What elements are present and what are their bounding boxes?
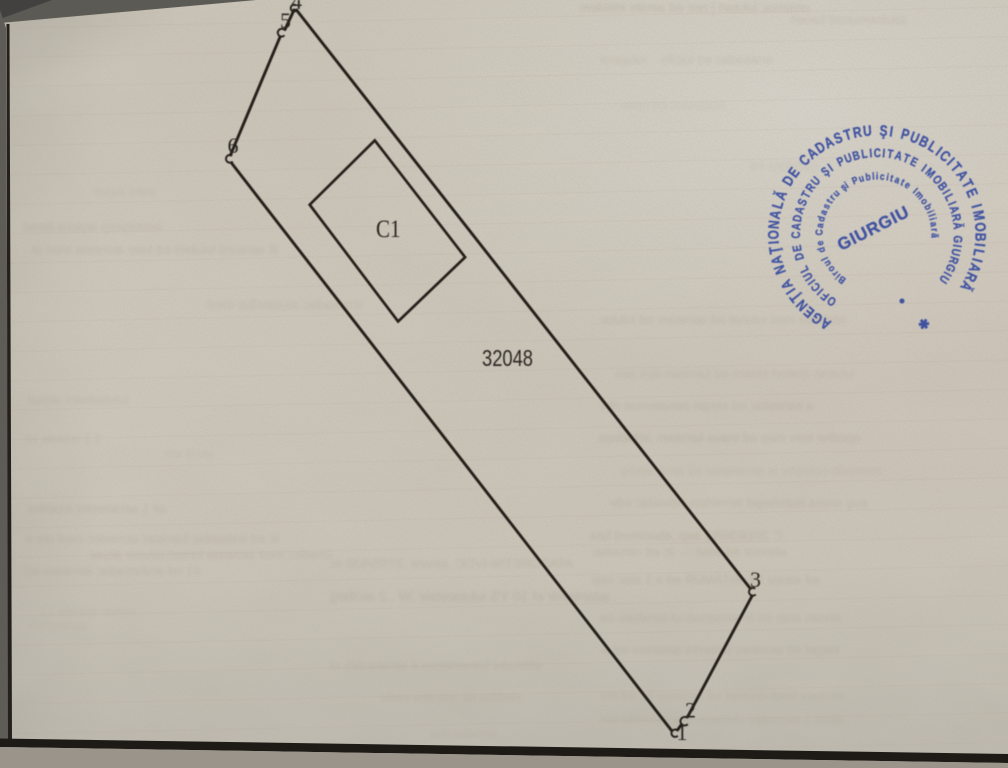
svg-text:U: U: [862, 122, 872, 139]
svg-text:C: C: [790, 231, 803, 238]
svg-text:Ă: Ă: [950, 222, 965, 231]
svg-text:M: M: [970, 209, 988, 222]
svg-text:C: C: [814, 229, 825, 236]
svg-text:E: E: [791, 244, 805, 253]
svg-text:GIURGIU: GIURGIU: [834, 202, 912, 254]
svg-text:L: L: [860, 148, 868, 162]
svg-text:c: c: [879, 171, 885, 182]
svg-text:I: I: [765, 240, 782, 245]
svg-text:G: G: [950, 235, 964, 244]
svg-text:e: e: [814, 240, 825, 246]
svg-text:O: O: [765, 230, 782, 239]
svg-text:R: R: [948, 213, 962, 223]
svg-text:l: l: [872, 171, 875, 182]
svg-text:N: N: [765, 220, 782, 230]
svg-text:b: b: [865, 171, 872, 182]
svg-text:I: I: [968, 202, 985, 210]
svg-text:I: I: [889, 123, 895, 140]
svg-text:B: B: [972, 233, 989, 242]
svg-text:I: I: [971, 242, 988, 247]
svg-text:O: O: [972, 222, 989, 232]
svg-text:Ş: Ş: [879, 122, 888, 139]
svg-text:I: I: [882, 147, 886, 160]
svg-text:A: A: [790, 223, 804, 231]
svg-text:i: i: [876, 171, 878, 182]
svg-text:a: a: [928, 221, 940, 228]
svg-text:C: C: [874, 147, 881, 160]
svg-text:✱: ✱: [916, 315, 932, 333]
svg-text:Ţ: Ţ: [766, 245, 784, 255]
svg-text:ă: ă: [929, 233, 940, 239]
svg-text:R: R: [852, 123, 864, 141]
svg-text:r: r: [929, 228, 940, 232]
svg-text:I: I: [869, 147, 873, 160]
svg-text:L: L: [970, 248, 988, 258]
